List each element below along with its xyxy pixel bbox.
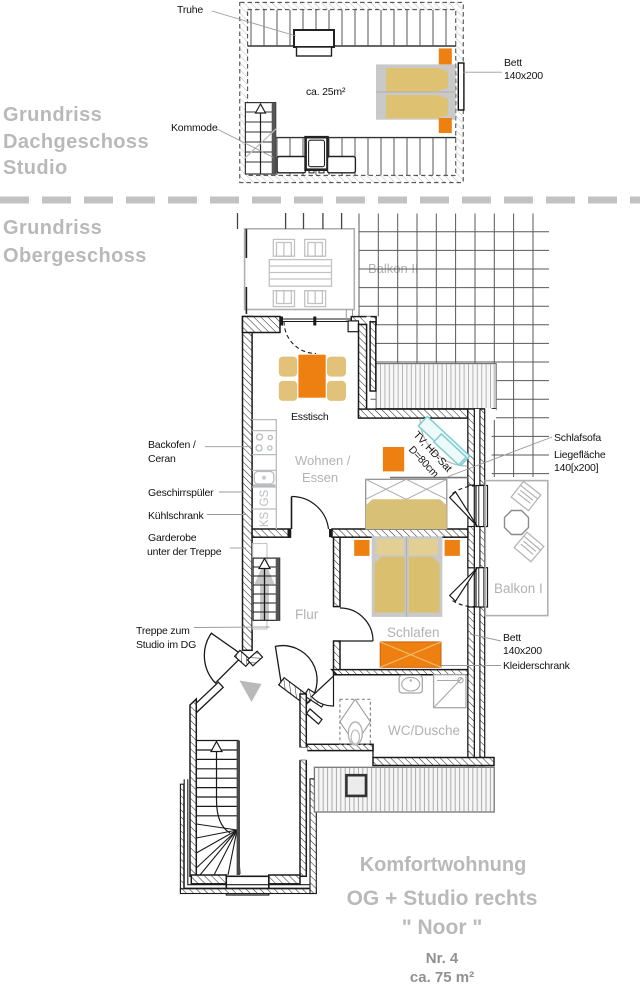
svg-text:Grundriss: Grundriss	[3, 104, 102, 126]
svg-text:Kühlschrank: Kühlschrank	[148, 510, 205, 522]
svg-text:Treppe zum: Treppe zum	[136, 625, 190, 637]
svg-text:Schlafsofa: Schlafsofa	[554, 432, 601, 444]
svg-text:Komfortwohnung: Komfortwohnung	[360, 854, 527, 876]
svg-text:140x200: 140x200	[503, 645, 542, 657]
svg-text:Garderobe: Garderobe	[148, 532, 197, 544]
svg-text:Grundriss: Grundriss	[3, 217, 102, 239]
svg-text:Schlafen: Schlafen	[387, 625, 440, 640]
svg-text:Balkon I: Balkon I	[494, 581, 543, 596]
svg-text:Bett: Bett	[503, 632, 521, 644]
svg-text:Kleiderschrank: Kleiderschrank	[503, 660, 571, 672]
svg-text:Kommode: Kommode	[171, 122, 218, 134]
svg-text:140[x200]: 140[x200]	[554, 462, 599, 474]
svg-text:Esstisch: Esstisch	[291, 411, 329, 423]
svg-text:Nr. 4: Nr. 4	[426, 950, 459, 967]
svg-text:GS: GS	[259, 489, 271, 506]
svg-text:unter der Treppe: unter der Treppe	[147, 546, 222, 558]
svg-text:Studio im DG: Studio im DG	[136, 639, 196, 651]
svg-text:Flur: Flur	[295, 607, 319, 622]
svg-text:OG + Studio rechts: OG + Studio rechts	[347, 887, 538, 910]
svg-text:ca. 75 m²: ca. 75 m²	[410, 969, 474, 984]
svg-text:Backofen /: Backofen /	[148, 439, 196, 451]
svg-text:Obergeschoss: Obergeschoss	[3, 245, 147, 267]
svg-text:Liegefläche: Liegefläche	[554, 449, 606, 461]
svg-text:140x200: 140x200	[504, 70, 543, 82]
svg-text:Truhe: Truhe	[177, 4, 203, 16]
svg-text:Bett: Bett	[504, 57, 522, 69]
svg-text:" Noor ": " Noor "	[402, 916, 483, 939]
svg-text:Geschirrspüler: Geschirrspüler	[148, 487, 214, 499]
svg-text:Studio: Studio	[3, 157, 68, 179]
svg-text:Essen: Essen	[302, 470, 338, 485]
svg-text:WC/Dusche: WC/Dusche	[388, 723, 460, 738]
svg-text:Dachgeschoss: Dachgeschoss	[3, 131, 149, 153]
svg-text:ca. 25m²: ca. 25m²	[306, 86, 346, 98]
svg-text:Wohnen /: Wohnen /	[295, 453, 351, 468]
svg-text:Ceran: Ceran	[148, 453, 176, 465]
svg-text:KS: KS	[259, 512, 271, 528]
